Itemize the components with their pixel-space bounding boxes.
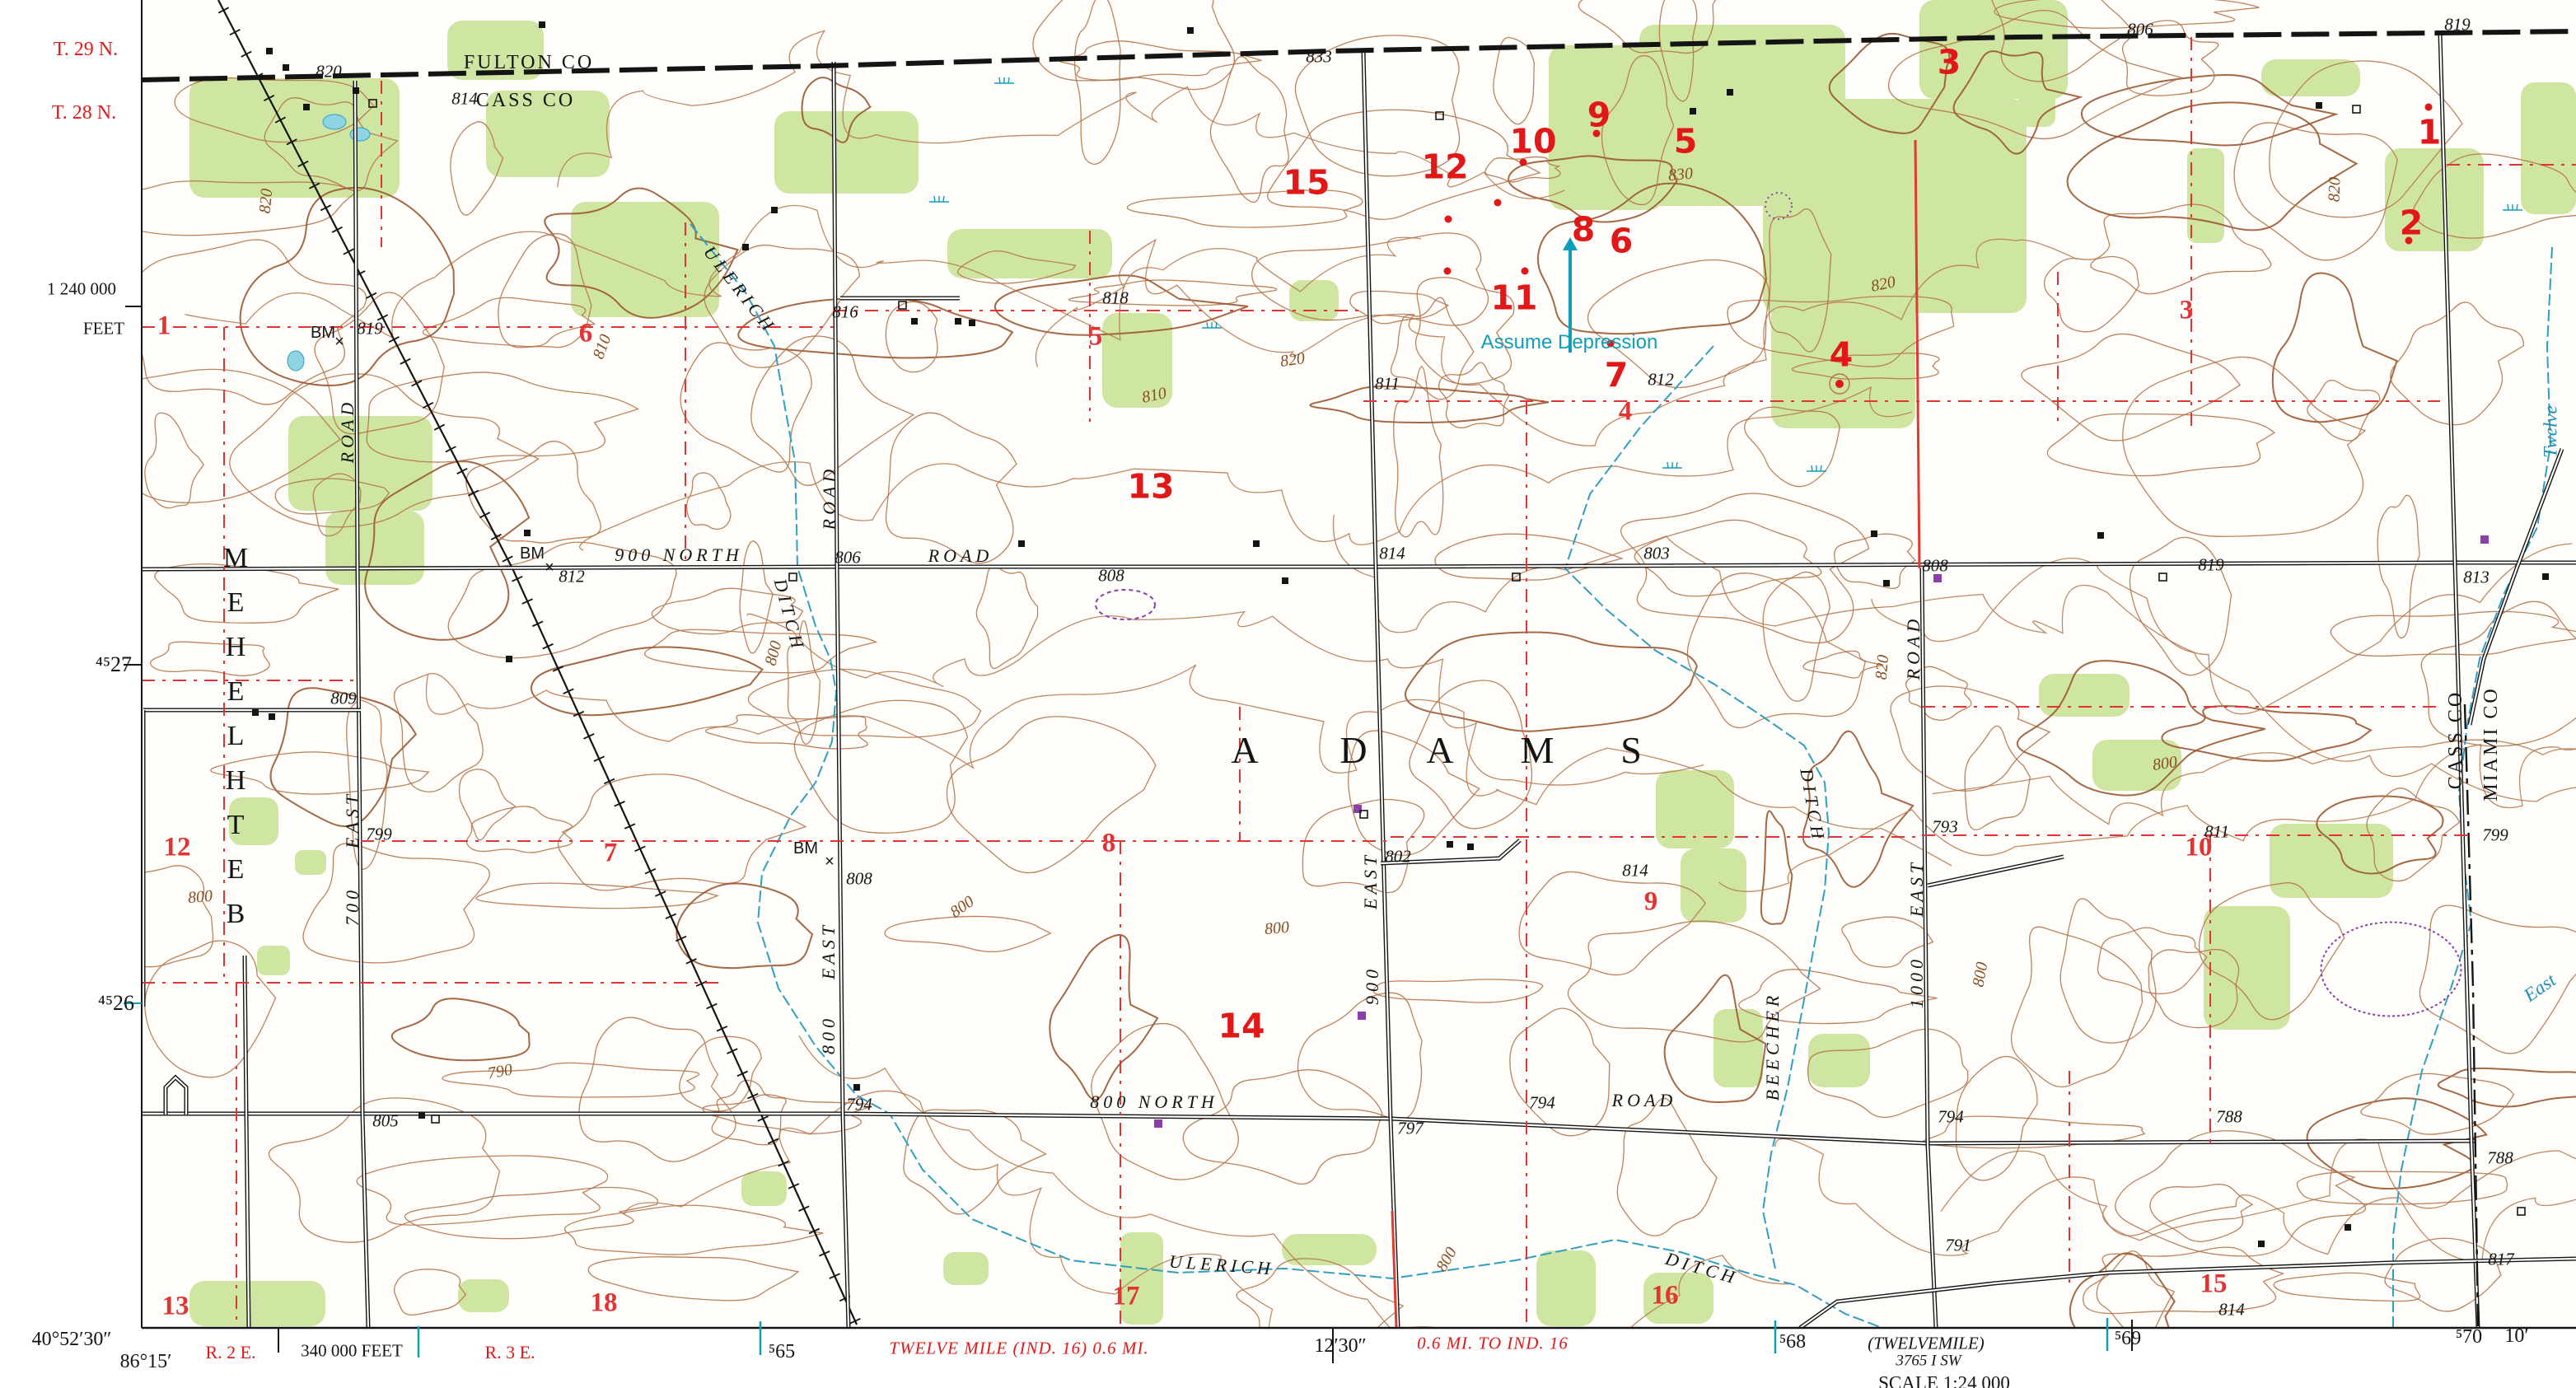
- map-label: A: [1426, 731, 1453, 769]
- photorevision-building: [1154, 1119, 1162, 1128]
- contour-elevation-label: 800: [187, 888, 213, 907]
- building-square: [1871, 530, 1877, 537]
- building-square: [252, 709, 259, 716]
- spot-elevation: 814: [451, 91, 478, 108]
- section-number: 15: [2200, 1271, 2228, 1298]
- margin-label: SCALE 1:24 000: [1878, 1374, 2010, 1388]
- spot-elevation: 819: [2444, 16, 2471, 34]
- map-label: EAST: [820, 922, 838, 979]
- photorevision-building: [1358, 1012, 1366, 1020]
- spot-elevation: 814: [1379, 545, 1405, 563]
- handwritten-number: 7: [1605, 359, 1629, 393]
- building-square: [969, 320, 975, 326]
- building-square: [1467, 844, 1474, 850]
- map-label: S: [1620, 731, 1642, 769]
- contour-elevation-label: 820: [1279, 350, 1306, 370]
- map-label: ×: [545, 559, 554, 576]
- margin-label: 340 000 FEET: [301, 1343, 403, 1360]
- map-label: 800 NORTH: [1090, 1093, 1218, 1111]
- building-square: [1727, 89, 1733, 96]
- margin-label: R. 2 E.: [205, 1344, 255, 1362]
- pond: [288, 351, 304, 371]
- section-number: 16: [1652, 1283, 1679, 1310]
- map-label: M: [1521, 731, 1554, 769]
- margin-label: ⁵69: [2115, 1329, 2141, 1348]
- map-label: 1000: [1908, 956, 1926, 1008]
- map-label: T: [227, 811, 245, 839]
- building-square: [1253, 540, 1260, 547]
- handwritten-number: 14: [1218, 1010, 1265, 1044]
- building-square: [2316, 102, 2322, 109]
- section-number: 10: [2186, 834, 2213, 862]
- map-label: A: [1231, 731, 1258, 769]
- spot-elevation: 806: [835, 549, 861, 567]
- handwritten-number: 5: [1674, 125, 1698, 159]
- woodland-patch: [1536, 1250, 1596, 1326]
- map-label: BM: [311, 325, 335, 341]
- contour-elevation-label: 830: [1667, 166, 1694, 185]
- spot-elevation: 808: [846, 871, 872, 888]
- photorevision-building: [2480, 535, 2489, 544]
- building-square: [266, 48, 273, 54]
- woodland-patch: [257, 946, 290, 975]
- building-square: [539, 21, 545, 28]
- contour-elevation-label: 800: [1971, 960, 1991, 988]
- building-square: [1690, 108, 1696, 114]
- building-square: [269, 713, 275, 720]
- map-canvas: [0, 0, 2576, 1388]
- map-label: ×: [825, 853, 835, 870]
- contour-elevation-label: 820: [257, 188, 276, 214]
- red-marker-dot: [2425, 104, 2433, 111]
- woodland-patch: [943, 1252, 989, 1285]
- margin-label: ⁴⁵26: [98, 993, 134, 1014]
- woodland-patch: [1289, 280, 1339, 321]
- section-number: 3: [2180, 297, 2194, 325]
- section-number: 8: [1102, 830, 1116, 858]
- woodland-patch: [295, 850, 326, 875]
- margin-label: TWELVE MILE (IND. 16) 0.6 MI.: [889, 1340, 1148, 1358]
- contour-elevation-label: 800: [1264, 919, 1290, 938]
- building-square: [2258, 1241, 2265, 1247]
- spot-elevation: 816: [832, 304, 858, 321]
- red-marker-dot: [1445, 216, 1452, 223]
- spot-elevation: 808: [1922, 558, 1948, 575]
- spot-elevation: 793: [1932, 819, 1958, 836]
- contour-elevation-label: 820: [2326, 177, 2343, 203]
- building-square: [506, 656, 512, 662]
- map-label: E: [227, 678, 245, 706]
- pond: [323, 114, 346, 129]
- section-number: 7: [604, 840, 618, 867]
- red-marker-dot: [1835, 380, 1844, 388]
- map-label: CASS CO: [476, 91, 575, 110]
- map-label: EAST: [344, 791, 362, 848]
- margin-label: 40°52′30″: [32, 1330, 112, 1349]
- map-label: Twelve: [2541, 405, 2560, 457]
- building-square: [771, 207, 778, 213]
- margin-label: R. 3 E.: [484, 1344, 535, 1362]
- spot-elevation: 813: [2463, 569, 2490, 587]
- spot-elevation: 819: [357, 320, 383, 338]
- section-number: 6: [579, 320, 593, 348]
- handwritten-number: 3: [1938, 46, 1961, 80]
- woodland-patch: [774, 111, 919, 194]
- spot-elevation: 809: [330, 690, 357, 708]
- map-label: 700: [344, 886, 362, 926]
- margin-label: ⁵70: [2456, 1327, 2482, 1347]
- margin-label: 1 240 000: [47, 281, 116, 298]
- building-square: [353, 87, 359, 94]
- map-label: L: [227, 722, 245, 750]
- section-number: 1: [157, 313, 171, 340]
- handwritten-number: 9: [1587, 99, 1611, 133]
- building-square: [283, 64, 289, 71]
- contour-elevation-label: 820: [1873, 654, 1892, 680]
- section-number: 5: [1089, 324, 1103, 351]
- spot-elevation: 788: [2216, 1109, 2242, 1126]
- woodland-patch: [741, 1171, 787, 1206]
- left-margin: [0, 0, 142, 1388]
- building-square: [2345, 1224, 2351, 1231]
- topographic-map: T. 29 N.T. 28 N.1 240 000FEET⁴⁵27⁴⁵2640°…: [0, 0, 2576, 1388]
- building-square: [303, 104, 310, 110]
- building-square: [2542, 573, 2549, 580]
- spot-elevation: 794: [1529, 1095, 1555, 1112]
- red-marker-dot: [1494, 199, 1502, 207]
- margin-label: ⁴⁵27: [96, 654, 132, 675]
- spot-elevation: 794: [846, 1096, 872, 1114]
- spot-elevation: 833: [1306, 49, 1332, 66]
- building-square: [1883, 580, 1890, 587]
- map-label: EAST: [1362, 852, 1380, 909]
- handwritten-number: 11: [1490, 282, 1537, 315]
- handwritten-number: 8: [1572, 213, 1596, 247]
- building-square: [1187, 27, 1194, 34]
- woodland-patch: [2187, 148, 2224, 243]
- map-label: H: [226, 767, 246, 795]
- handwritten-number: 2: [2400, 207, 2424, 241]
- section-number: 13: [162, 1293, 189, 1320]
- section-number: 9: [1644, 889, 1658, 916]
- spot-elevation: 820: [316, 63, 342, 81]
- building-square: [742, 244, 749, 250]
- margin-label: 12′30″: [1314, 1336, 1366, 1356]
- map-label: ×: [334, 334, 344, 350]
- handwritten-number: 6: [1610, 225, 1634, 259]
- photorevision-building: [1933, 574, 1942, 582]
- margin-label: ⁵65: [769, 1342, 795, 1362]
- woodland-patch: [2018, 38, 2055, 127]
- spot-elevation: 806: [2127, 21, 2153, 39]
- map-label: FULTON CO: [464, 53, 594, 72]
- margin-label: FEET: [83, 320, 124, 338]
- building-square: [853, 1084, 860, 1091]
- spot-elevation: 791: [1945, 1237, 1971, 1255]
- margin-label: ⁵68: [1779, 1332, 1806, 1352]
- spot-elevation: 805: [372, 1113, 399, 1130]
- spot-elevation: 788: [2487, 1150, 2513, 1167]
- section-number: 18: [591, 1290, 618, 1317]
- map-label: ROAD: [339, 399, 357, 464]
- building-square: [2097, 532, 2104, 539]
- margin-label: 10′: [2504, 1326, 2528, 1346]
- map-label: BM: [520, 545, 545, 562]
- woodland-patch: [1808, 1034, 1870, 1087]
- map-label: ROAD: [1612, 1091, 1677, 1110]
- margin-label: 0.6 MI. TO IND. 16: [1417, 1335, 1569, 1353]
- map-label: CASS CO: [2446, 690, 2466, 789]
- contour-elevation-label: 800: [2152, 754, 2178, 773]
- building-square: [1282, 577, 1288, 584]
- margin-label: T. 28 N.: [52, 103, 116, 123]
- woodland-patch: [458, 1279, 509, 1312]
- spot-elevation: 814: [2218, 1302, 2245, 1319]
- spot-elevation: 818: [1102, 290, 1129, 307]
- contour-elevation-label: 790: [486, 1062, 513, 1082]
- map-label: ROAD: [1905, 615, 1923, 680]
- spot-elevation: 802: [1385, 848, 1411, 866]
- margin-label: 3765 I SW: [1896, 1353, 1961, 1369]
- spot-elevation: 799: [366, 826, 392, 844]
- spot-elevation: 819: [2198, 557, 2224, 574]
- building-square: [955, 318, 961, 325]
- map-label: 900: [1363, 965, 1382, 1005]
- woodland-patch: [571, 202, 719, 317]
- woodland-patch: [2521, 82, 2576, 214]
- map-label: BEECHER: [1764, 992, 1782, 1101]
- woodland-patch: [2039, 674, 2130, 717]
- spot-elevation: 799: [2482, 827, 2508, 844]
- spot-elevation: 794: [1938, 1109, 1964, 1126]
- woodland-patch: [2204, 906, 2290, 1030]
- margin-label: 86°15′: [120, 1352, 172, 1372]
- building-square: [524, 530, 531, 536]
- handwritten-number: 12: [1421, 151, 1468, 185]
- margin-label: T. 29 N.: [54, 40, 118, 59]
- spot-elevation: 797: [1397, 1120, 1424, 1138]
- margin-label: (TWELVEMILE): [1868, 1335, 1985, 1353]
- woodland-patch: [189, 1281, 325, 1326]
- map-label: D: [1339, 731, 1367, 769]
- red-marker-dot: [1444, 268, 1452, 275]
- spot-elevation: 808: [1098, 568, 1124, 585]
- spot-elevation: 814: [1622, 862, 1648, 880]
- spot-elevation: 803: [1643, 545, 1670, 563]
- building-square: [418, 1112, 425, 1119]
- pond: [350, 128, 370, 141]
- assume-depression-note: Assume Depression: [1481, 333, 1658, 353]
- woodland-patch: [947, 229, 1112, 278]
- handwritten-number: 4: [1830, 339, 1854, 372]
- section-number: 4: [1619, 399, 1633, 426]
- handwritten-number: 10: [1509, 125, 1556, 159]
- map-label: EAST: [1908, 859, 1926, 917]
- map-label: MIAMI CO: [2481, 686, 2501, 801]
- map-label: ROAD: [820, 465, 839, 530]
- red-marker-dot: [1522, 268, 1529, 275]
- handwritten-number: 13: [1127, 470, 1174, 504]
- building-square: [911, 318, 918, 325]
- woodland-patch: [1681, 848, 1746, 923]
- building-square: [1018, 540, 1025, 547]
- spot-elevation: 817: [2488, 1251, 2514, 1269]
- map-label: 900 NORTH: [615, 546, 743, 564]
- spot-elevation: 812: [1648, 372, 1674, 389]
- map-label: E: [227, 856, 245, 884]
- map-label: E: [227, 589, 245, 617]
- map-label: ROAD: [928, 547, 993, 565]
- spot-elevation: 812: [559, 568, 585, 586]
- section-number: 17: [1113, 1283, 1140, 1311]
- building-square: [1447, 841, 1453, 848]
- map-label: 800: [820, 1015, 838, 1054]
- section-number: 12: [164, 834, 191, 862]
- map-label: BM: [793, 840, 818, 857]
- map-label: M: [223, 544, 248, 572]
- handwritten-number: 15: [1283, 166, 1330, 200]
- spot-elevation: 811: [1375, 376, 1400, 393]
- handwritten-number: 1: [2418, 116, 2442, 150]
- map-label: H: [226, 633, 246, 661]
- map-label: B: [227, 900, 245, 928]
